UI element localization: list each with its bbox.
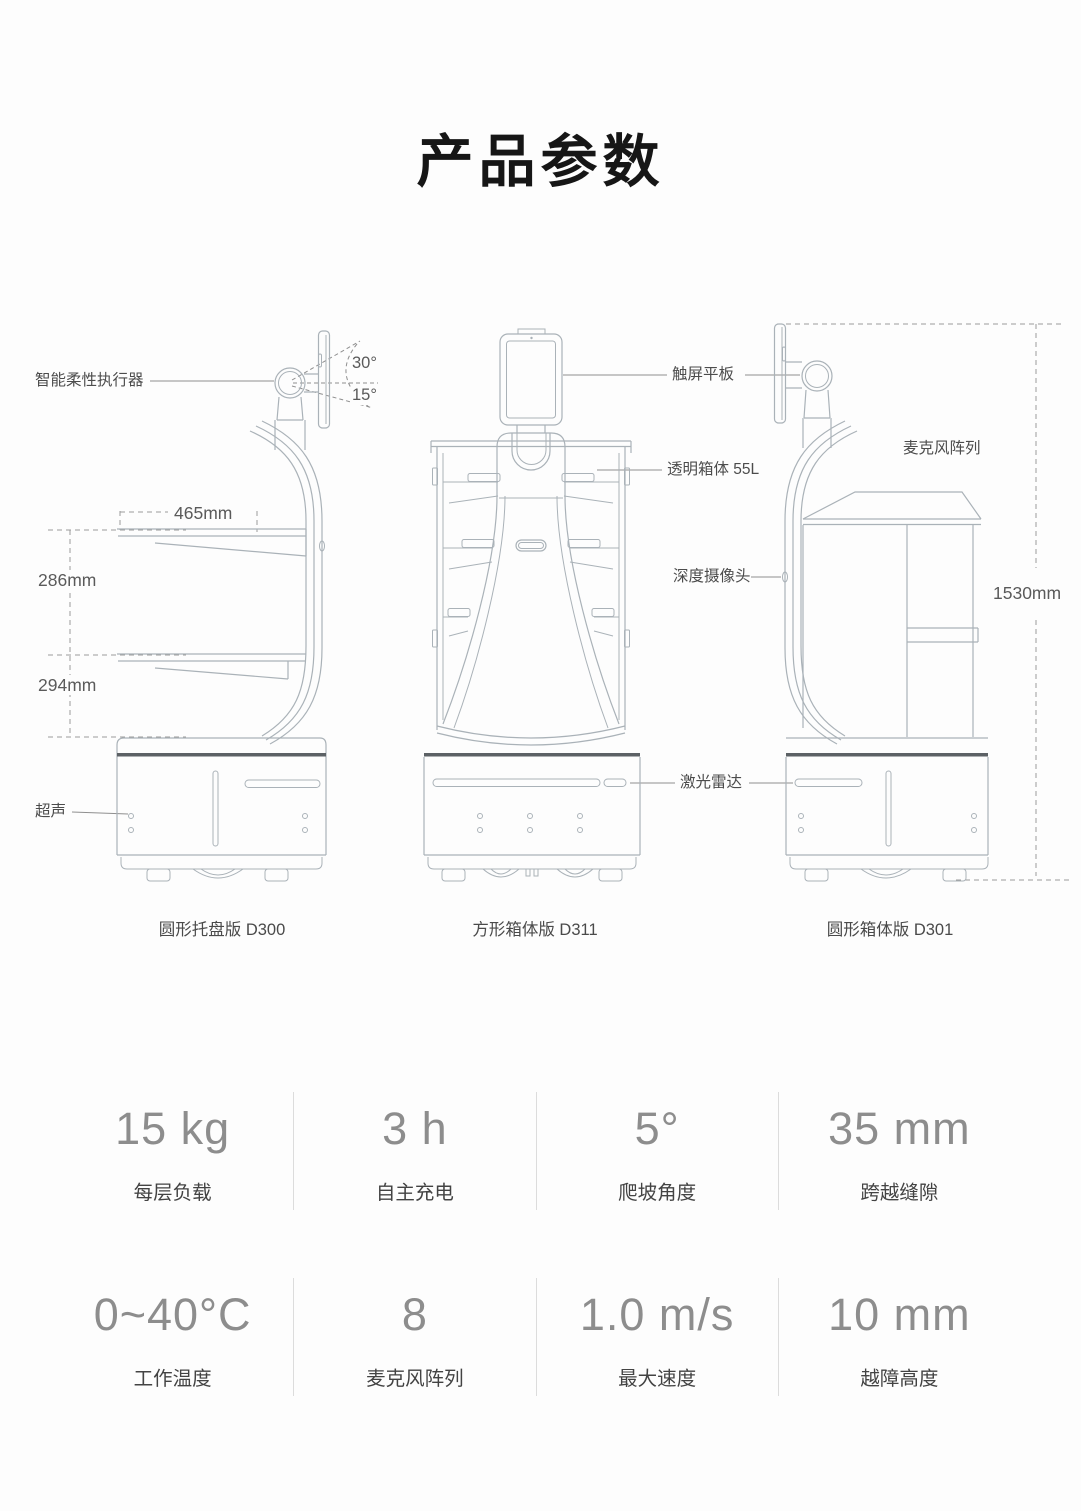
spec-cell-slope: 5° 爬坡角度 [537, 1098, 778, 1205]
label-depth-camera: 深度摄像头 [673, 568, 751, 586]
spec-label: 最大速度 [537, 1362, 778, 1391]
caption-model-d301: 圆形箱体版 D301 [827, 916, 954, 940]
spec-cell-temperature: 0~40°C 工作温度 [52, 1284, 293, 1391]
spec-value: 0~40°C [52, 1284, 293, 1346]
label-tilt-down: 15° [351, 386, 378, 405]
robot-d300-drawing [117, 331, 330, 881]
spec-label: 爬坡角度 [537, 1176, 778, 1205]
spec-value: 1.0 m/s [537, 1284, 778, 1346]
spec-row-1: 15 kg 每层负载 3 h 自主充电 5° 爬坡角度 35 mm 跨越缝隙 [52, 1092, 1020, 1210]
dim-tray-width: 465mm [172, 503, 234, 523]
label-mic-array: 麦克风阵列 [903, 440, 981, 458]
label-transparent-box: 透明箱体 55L [667, 461, 759, 479]
spec-cell-obstacle: 10 mm 越障高度 [779, 1284, 1020, 1391]
robot-line-art [0, 300, 1081, 960]
spec-cell-gap: 35 mm 跨越缝隙 [779, 1098, 1020, 1205]
robot-d311-drawing [424, 329, 640, 881]
spec-value: 10 mm [779, 1284, 1020, 1346]
dimension-lines [48, 324, 1070, 880]
spec-cell-speed: 1.0 m/s 最大速度 [537, 1284, 778, 1391]
spec-cell-charging: 3 h 自主充电 [294, 1098, 535, 1205]
label-tilt-up: 30° [351, 354, 378, 373]
label-ultrasonic: 超声 [35, 803, 66, 821]
caption-model-d311: 方形箱体版 D311 [472, 916, 597, 940]
label-lidar: 激光雷达 [680, 774, 742, 792]
dim-tray-gap-upper: 286mm [36, 570, 98, 590]
spec-cell-payload: 15 kg 每层负载 [52, 1098, 293, 1205]
spec-cell-microphones: 8 麦克风阵列 [294, 1284, 535, 1391]
spec-label: 自主充电 [294, 1176, 535, 1205]
spec-label: 越障高度 [779, 1362, 1020, 1391]
spec-value: 15 kg [52, 1098, 293, 1160]
product-spec-page: 产品参数 [0, 0, 1081, 1511]
spec-value: 8 [294, 1284, 535, 1346]
label-actuator: 智能柔性执行器 [35, 372, 144, 390]
spec-label: 工作温度 [52, 1362, 293, 1391]
label-touchscreen: 触屏平板 [672, 366, 734, 384]
dim-tray-gap-lower: 294mm [36, 675, 98, 695]
caption-model-d300: 圆形托盘版 D300 [159, 916, 286, 940]
spec-label: 麦克风阵列 [294, 1362, 535, 1391]
robot-d301-drawing [775, 324, 989, 881]
spec-row-2: 0~40°C 工作温度 8 麦克风阵列 1.0 m/s 最大速度 10 mm 越… [52, 1278, 1020, 1396]
robot-diagrams: 智能柔性执行器 30° 15° 465mm 286mm 294mm 超声 触屏平… [0, 300, 1081, 960]
page-title: 产品参数 [0, 116, 1081, 198]
spec-value: 5° [537, 1098, 778, 1160]
dim-total-height: 1530mm [991, 583, 1063, 603]
spec-value: 3 h [294, 1098, 535, 1160]
spec-label: 跨越缝隙 [779, 1176, 1020, 1205]
spec-label: 每层负载 [52, 1176, 293, 1205]
spec-value: 35 mm [779, 1098, 1020, 1160]
